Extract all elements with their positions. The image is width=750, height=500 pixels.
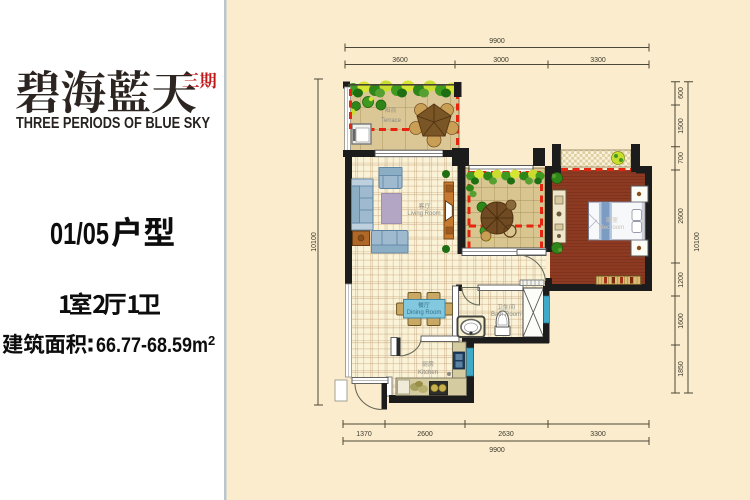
svg-text:1600: 1600	[678, 313, 685, 329]
svg-text:3000: 3000	[493, 57, 509, 64]
svg-text:10100: 10100	[694, 232, 701, 252]
svg-text:2630: 2630	[498, 431, 514, 438]
svg-text:THREE PERIODS OF BLUE SKY: THREE PERIODS OF BLUE SKY	[16, 115, 211, 132]
svg-text:1370: 1370	[356, 431, 372, 438]
svg-text:Bedroom: Bedroom	[600, 225, 624, 231]
svg-text:700: 700	[678, 152, 685, 164]
svg-text:3600: 3600	[392, 57, 408, 64]
svg-text:01/05: 01/05	[50, 216, 109, 251]
svg-text:Kitchen: Kitchen	[418, 370, 438, 376]
svg-text:2600: 2600	[417, 431, 433, 438]
svg-text:3300: 3300	[590, 57, 606, 64]
svg-text:2: 2	[208, 333, 215, 348]
svg-text:1500: 1500	[678, 118, 685, 134]
svg-text:Dining Room: Dining Room	[407, 310, 442, 316]
svg-text:1850: 1850	[678, 361, 685, 377]
svg-text:Bath Room: Bath Room	[491, 312, 521, 318]
svg-text:Living Room: Living Room	[407, 211, 440, 217]
svg-text:66.77-68.59m: 66.77-68.59m	[96, 333, 208, 357]
svg-text:9900: 9900	[489, 38, 505, 45]
svg-text:1200: 1200	[678, 272, 685, 288]
svg-text:9900: 9900	[489, 447, 505, 454]
svg-text:2600: 2600	[678, 208, 685, 224]
svg-text:Terrace: Terrace	[381, 118, 402, 124]
svg-text:10100: 10100	[311, 232, 318, 252]
svg-text:3300: 3300	[590, 431, 606, 438]
svg-text:600: 600	[678, 87, 685, 99]
